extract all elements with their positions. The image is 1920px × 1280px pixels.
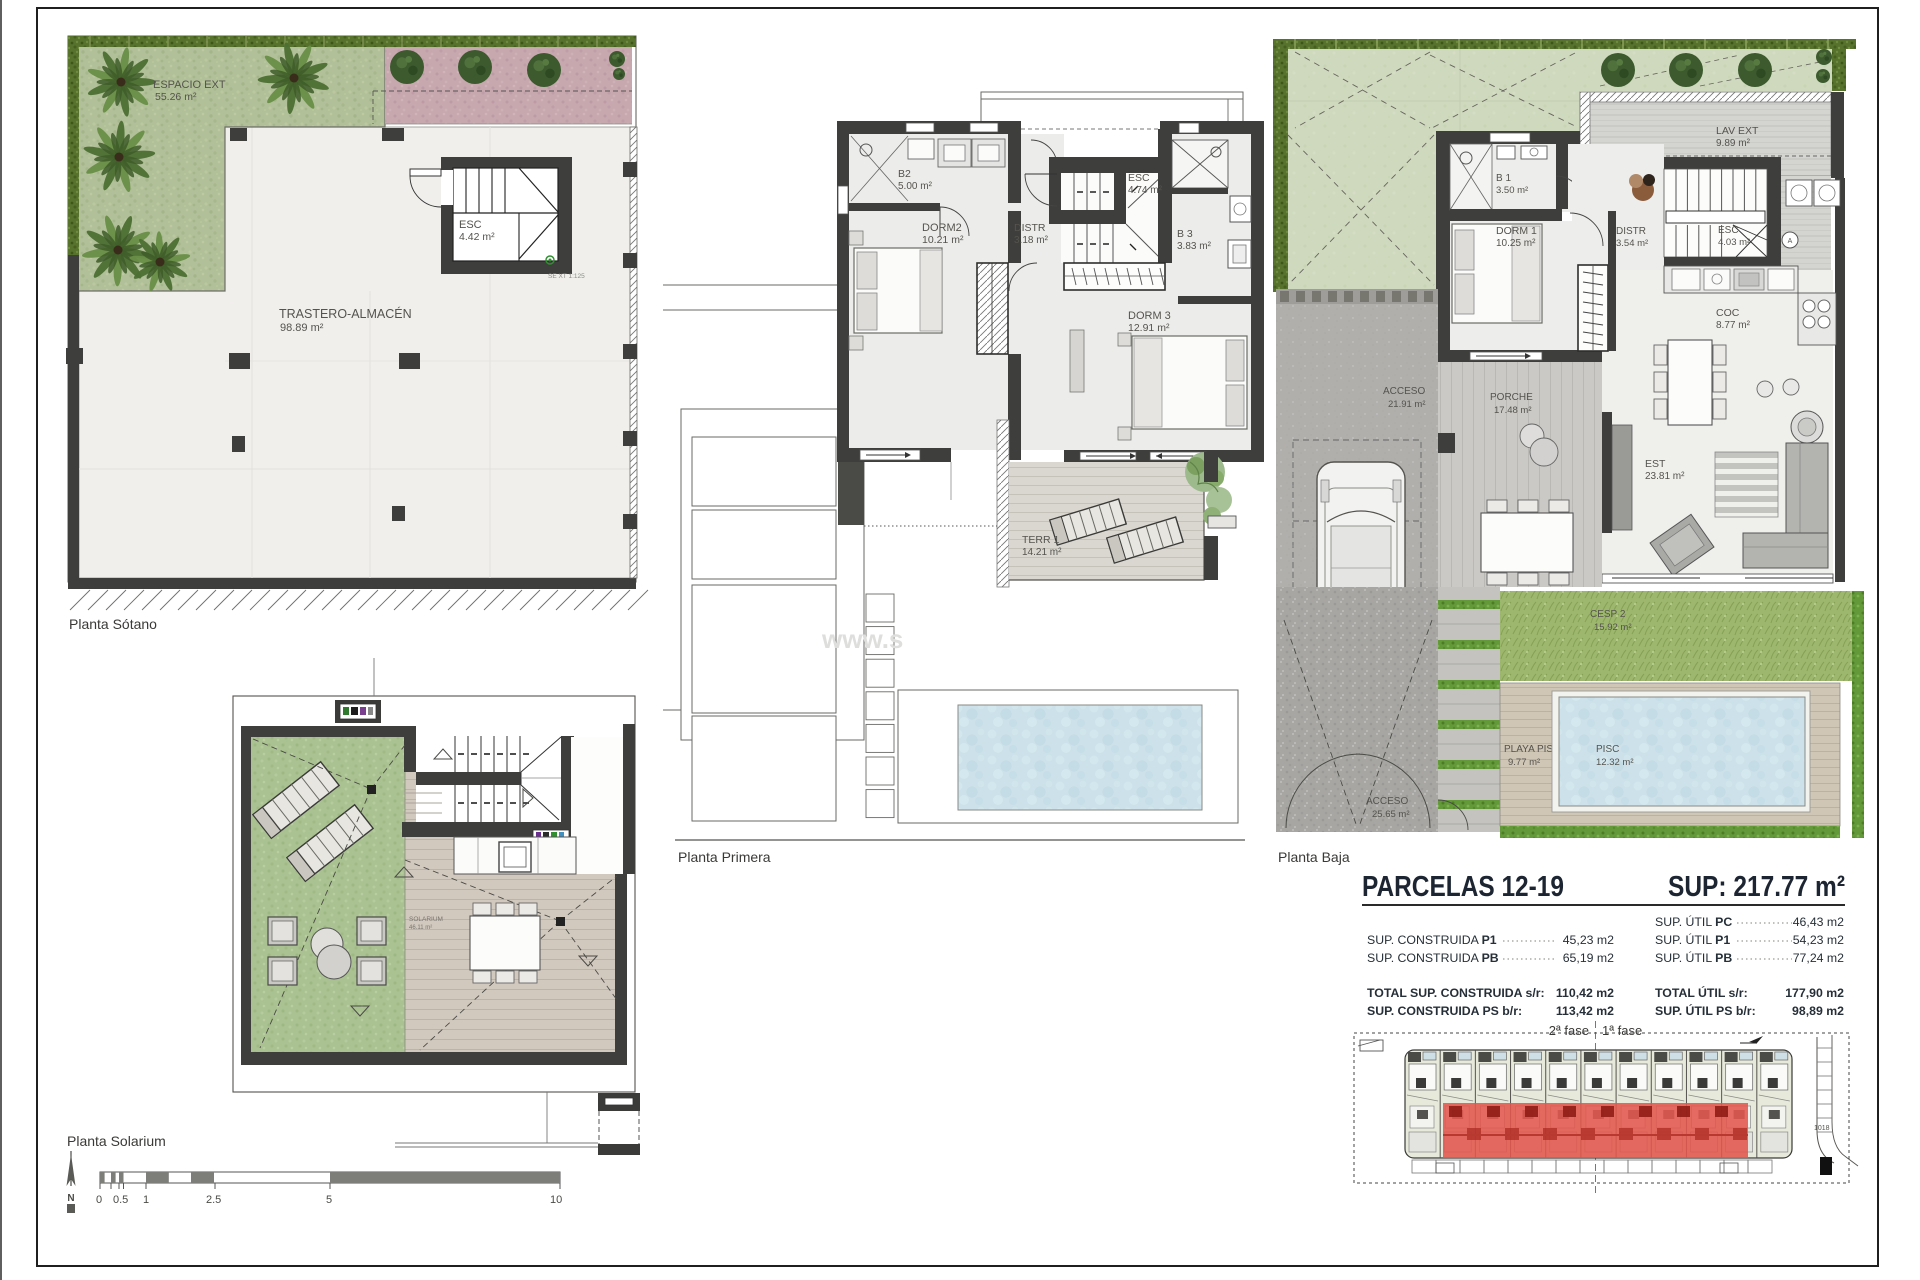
svg-text:4.74 m²: 4.74 m² <box>1128 185 1163 196</box>
svg-text:0: 0 <box>96 1194 102 1206</box>
svg-text:SUP. CONSTRUIDA P1: SUP. CONSTRUIDA P1 <box>1367 933 1497 947</box>
svg-text:SUP. CONSTRUIDA PB: SUP. CONSTRUIDA PB <box>1367 951 1499 965</box>
svg-text:B 1: B 1 <box>1496 173 1511 184</box>
svg-text:46.11 m²: 46.11 m² <box>409 925 432 931</box>
svg-text:www.s: www.s <box>821 624 903 654</box>
svg-text:54,23 m2: 54,23 m2 <box>1793 933 1844 947</box>
svg-text:10.21 m²: 10.21 m² <box>922 234 964 246</box>
svg-text:DORM 3: DORM 3 <box>1128 310 1171 322</box>
svg-text:5: 5 <box>326 1194 332 1206</box>
svg-text:21.91 m²: 21.91 m² <box>1388 399 1426 410</box>
svg-text:EST: EST <box>1645 458 1666 470</box>
svg-text:3.54 m²: 3.54 m² <box>1616 238 1648 249</box>
svg-text:0.5: 0.5 <box>113 1194 128 1206</box>
svg-text:LAV EXT: LAV EXT <box>1716 125 1759 137</box>
svg-text:TOTAL SUP. CONSTRUIDA s/r:: TOTAL SUP. CONSTRUIDA s/r: <box>1367 986 1545 1000</box>
svg-text:DISTR: DISTR <box>1616 226 1646 237</box>
svg-text:98,89 m2: 98,89 m2 <box>1792 1004 1844 1018</box>
svg-text:COC: COC <box>1716 307 1740 319</box>
svg-text:4.03 m²: 4.03 m² <box>1718 237 1750 248</box>
svg-text:110,42 m2: 110,42 m2 <box>1556 986 1614 1000</box>
svg-text:46,43 m2: 46,43 m2 <box>1793 915 1844 929</box>
svg-text:SE XT 1:125: SE XT 1:125 <box>548 273 585 280</box>
svg-text:3.83 m²: 3.83 m² <box>1177 241 1212 252</box>
svg-text:77,24 m2: 77,24 m2 <box>1793 951 1844 965</box>
svg-text:23.81 m²: 23.81 m² <box>1645 471 1685 482</box>
svg-text:SUP: 217.77 m²: SUP: 217.77 m² <box>1668 871 1845 903</box>
svg-text:PISC: PISC <box>1596 744 1619 755</box>
svg-text:SUP. ÚTIL PB: SUP. ÚTIL PB <box>1655 950 1732 965</box>
svg-text:9.77 m²: 9.77 m² <box>1508 757 1540 768</box>
svg-text:DORM2: DORM2 <box>922 222 962 234</box>
svg-text:12.91 m²: 12.91 m² <box>1128 322 1170 334</box>
svg-text:TRASTERO-ALMACÉN: TRASTERO-ALMACÉN <box>279 306 412 321</box>
svg-text:4.42 m²: 4.42 m² <box>459 231 495 243</box>
svg-text:SOLARIUM: SOLARIUM <box>409 916 443 923</box>
svg-text:45,23 m2: 45,23 m2 <box>1563 933 1614 947</box>
svg-text:25.65 m²: 25.65 m² <box>1372 809 1410 820</box>
svg-text:ESC: ESC <box>1128 172 1150 184</box>
svg-text:ESC: ESC <box>1718 225 1739 236</box>
svg-text:113,42 m2: 113,42 m2 <box>1556 1004 1614 1018</box>
svg-text:15.92 m²: 15.92 m² <box>1594 622 1632 633</box>
svg-text:14.21 m²: 14.21 m² <box>1022 547 1062 558</box>
svg-text:TOTAL ÚTIL s/r:: TOTAL ÚTIL s/r: <box>1655 985 1748 1000</box>
svg-text:3.50 m²: 3.50 m² <box>1496 185 1528 196</box>
svg-text:10: 10 <box>550 1194 562 1206</box>
svg-text:ACCESO: ACCESO <box>1383 386 1425 397</box>
svg-text:DISTR: DISTR <box>1014 222 1046 234</box>
svg-text:10.25 m²: 10.25 m² <box>1496 238 1536 249</box>
svg-text:PORCHE: PORCHE <box>1490 392 1533 403</box>
svg-text:17.48 m²: 17.48 m² <box>1494 405 1532 416</box>
svg-text:SUP. ÚTIL PC: SUP. ÚTIL PC <box>1655 914 1732 929</box>
svg-text:Planta Sótano: Planta Sótano <box>69 616 157 632</box>
svg-text:98.89 m²: 98.89 m² <box>280 322 324 334</box>
svg-text:B 3: B 3 <box>1177 228 1193 240</box>
svg-text:CESP 2: CESP 2 <box>1590 609 1626 620</box>
svg-text:B2: B2 <box>898 168 911 180</box>
svg-text:55.26 m²: 55.26 m² <box>155 91 197 103</box>
svg-text:12.32 m²: 12.32 m² <box>1596 757 1634 768</box>
svg-text:3.18 m²: 3.18 m² <box>1014 235 1049 246</box>
svg-text:TERR 1: TERR 1 <box>1022 534 1060 546</box>
svg-text:SUP. ÚTIL P1: SUP. ÚTIL P1 <box>1655 932 1730 947</box>
svg-text:ESPACIO EXT: ESPACIO EXT <box>153 79 226 91</box>
svg-text:N: N <box>67 1193 74 1204</box>
svg-text:177,90 m2: 177,90 m2 <box>1785 986 1844 1000</box>
svg-text:DORM 1: DORM 1 <box>1496 225 1537 237</box>
svg-text:Planta Primera: Planta Primera <box>678 849 771 865</box>
svg-text:ACCESO: ACCESO <box>1366 796 1408 807</box>
svg-text:SUP. CONSTRUIDA PS b/r:: SUP. CONSTRUIDA PS b/r: <box>1367 1004 1522 1018</box>
svg-text:65,19 m2: 65,19 m2 <box>1563 951 1614 965</box>
svg-text:8.77 m²: 8.77 m² <box>1716 320 1751 331</box>
svg-text:PARCELAS 12-19: PARCELAS 12-19 <box>1362 871 1564 903</box>
svg-text:SUP. ÚTIL PS b/r:: SUP. ÚTIL PS b/r: <box>1655 1003 1756 1018</box>
svg-text:5.00 m²: 5.00 m² <box>898 181 933 192</box>
svg-text:Planta Solarium: Planta Solarium <box>67 1133 166 1149</box>
svg-text:ESC: ESC <box>459 219 482 231</box>
svg-text:1ª fase: 1ª fase <box>1602 1023 1642 1038</box>
svg-text:1: 1 <box>143 1194 149 1206</box>
svg-text:2ª fase: 2ª fase <box>1549 1023 1589 1038</box>
svg-text:2.5: 2.5 <box>206 1194 221 1206</box>
svg-text:1018: 1018 <box>1814 1125 1830 1132</box>
svg-text:Planta Baja: Planta Baja <box>1278 849 1350 865</box>
svg-text:9.89 m²: 9.89 m² <box>1716 138 1751 149</box>
svg-text:A: A <box>1788 238 1793 245</box>
